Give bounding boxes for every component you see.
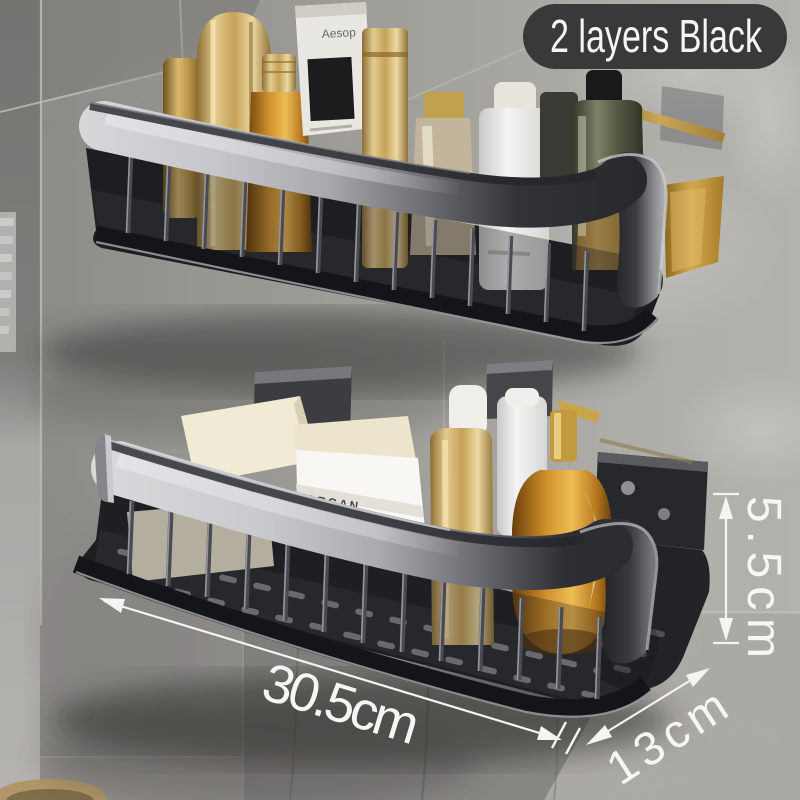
- svg-text:2 layers Black: 2 layers Black: [550, 10, 763, 62]
- svg-text:5.5cm: 5.5cm: [737, 496, 790, 658]
- svg-text:Aesop: Aesop: [321, 25, 356, 41]
